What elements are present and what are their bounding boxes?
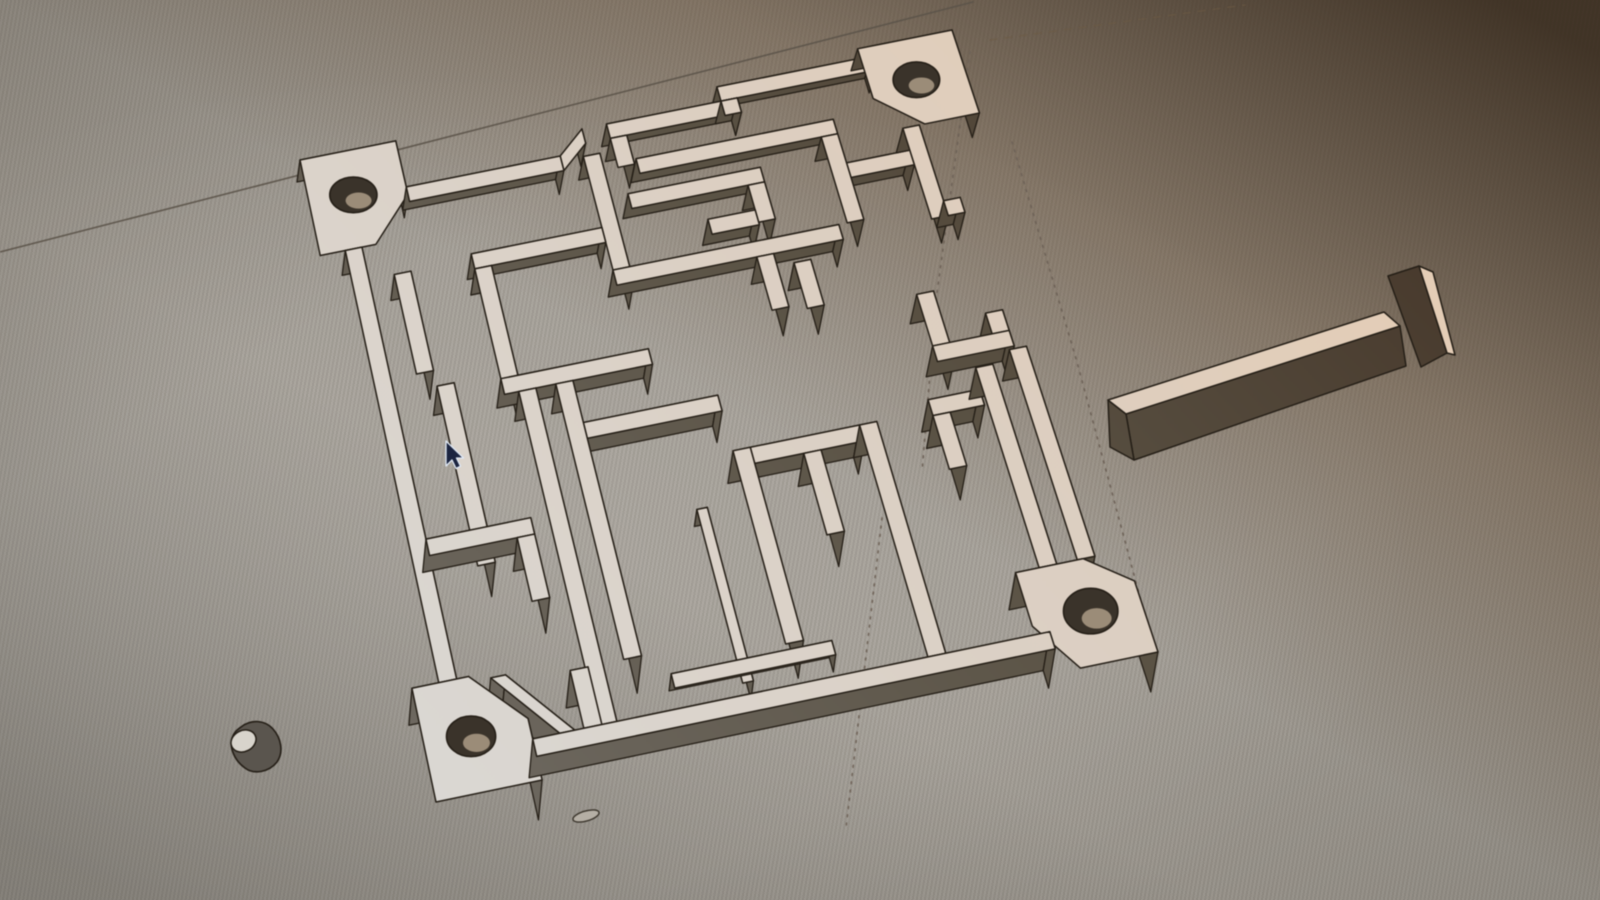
corner-block-top-left bbox=[297, 141, 408, 256]
h-structure-middle-stub bbox=[798, 450, 844, 567]
wall-top-face bbox=[860, 421, 946, 656]
right-l-wall-vertical bbox=[927, 412, 967, 500]
wall-top-face bbox=[721, 98, 741, 116]
cad-viewport[interactable] bbox=[0, 0, 1600, 900]
wall-top-face bbox=[475, 265, 522, 394]
hole-glint bbox=[1082, 608, 1112, 629]
horizon-line-faint bbox=[990, 5, 1245, 40]
entrance-step-wall bbox=[605, 135, 634, 188]
perimeter-wall-left bbox=[342, 247, 457, 716]
corner-block-top-right bbox=[851, 30, 979, 138]
hole-glint bbox=[909, 77, 935, 93]
h-structure-right-wall bbox=[854, 421, 946, 692]
wall-top-face bbox=[394, 271, 433, 374]
t-stub-wall bbox=[751, 254, 789, 336]
t-stub-arm-wall bbox=[788, 259, 824, 334]
t-bar-part bbox=[1108, 266, 1455, 460]
maze-plate bbox=[297, 30, 1158, 820]
wall-top-face bbox=[976, 364, 1057, 568]
wall-top-face bbox=[345, 247, 456, 683]
hole-glint bbox=[346, 193, 372, 209]
wall-top-face bbox=[733, 447, 803, 644]
hole-glint bbox=[463, 734, 490, 752]
model-scene bbox=[0, 0, 1600, 900]
wall-top-face bbox=[804, 450, 845, 535]
monitor-photo bbox=[0, 0, 1600, 900]
left-lower-corner-wall bbox=[513, 534, 549, 633]
bottom-slot-hole bbox=[572, 807, 601, 824]
wall-top-face bbox=[697, 507, 754, 683]
left-inner-wall-a bbox=[391, 271, 434, 399]
wall-top-face bbox=[944, 197, 965, 215]
cylinder-peg bbox=[227, 722, 281, 772]
perimeter-wall-top-left bbox=[403, 156, 564, 210]
wall-top-face bbox=[1009, 346, 1095, 560]
mid-horizontal-wall-lower bbox=[579, 395, 722, 453]
